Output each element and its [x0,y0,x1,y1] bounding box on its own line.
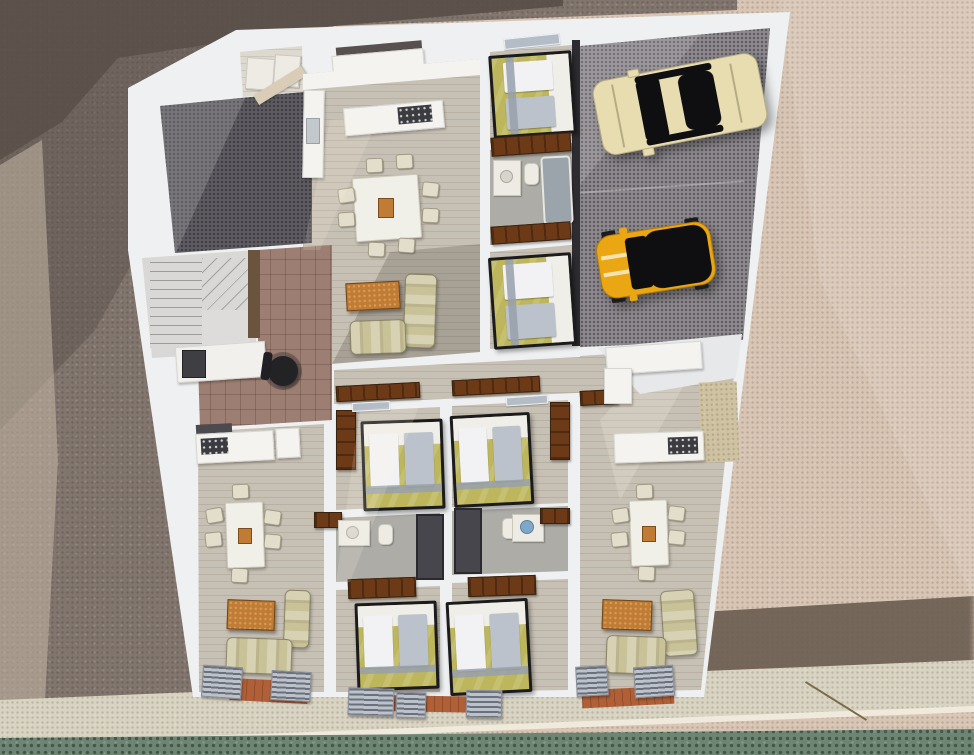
dining-chair [636,484,654,500]
bed-center-2R [446,598,533,696]
pillow [404,432,435,487]
bath-cabinet-right [540,508,570,524]
table-centerpiece-left [238,528,252,544]
cooktop-top-unit [397,105,432,125]
coffee-table-top [345,281,400,312]
sofa-long-top [403,273,438,348]
dining-chair [337,211,355,227]
bed-center-1R [450,412,535,508]
pillow [455,614,487,672]
dining-chair [396,154,414,170]
dining-chair [422,208,440,224]
louver-shutter [575,665,609,697]
dining-chair [397,237,415,253]
bed-tr-1 [488,50,577,139]
floor-plan-render [0,0,974,755]
shower-R [454,508,482,574]
wardrobe-bedroom2R [468,575,537,597]
toilet-tr [524,163,539,185]
yellow-mini [594,219,719,300]
pillow [490,612,522,670]
dining-chair [231,568,249,584]
pillow [459,428,490,484]
toilet-L [378,524,393,545]
cooktop-right-unit [668,436,699,454]
office-chair [268,356,298,386]
dining-chair [232,484,250,500]
dining-chair [667,529,685,546]
fridge-left-unit [275,427,301,458]
louver-shutter [270,670,312,702]
louver-shutter [633,665,675,699]
dining-chair [667,505,686,522]
stair-winder-treads [202,258,250,310]
bed-center-2L [354,601,439,692]
dining-chair [366,158,384,174]
shower-L [416,514,444,580]
mini-mirror-left [619,227,628,234]
pillow [363,615,394,668]
louver-shutter [348,687,395,717]
cooktop-left-unit [201,437,229,454]
louver-shutter [396,691,427,718]
bathtub-tr [540,155,574,224]
kitchen-counter-side-right-unit [604,368,632,404]
table-centerpiece-top [378,198,394,218]
louver-shutter [466,690,502,719]
dining-chair [263,509,282,526]
pillow [398,614,429,667]
stair-flight-straight [150,262,202,348]
dining-chair [205,507,224,525]
dining-chair [610,531,628,548]
dining-chair [421,181,439,198]
dining-chair [611,507,630,524]
coffee-table-right [601,599,652,631]
louver-shutter [201,665,243,700]
stair-edge-wood [248,250,260,338]
dining-chair [638,566,656,582]
bed-tr-2 [488,252,577,350]
wardrobe-bedroom1R [550,402,570,460]
table-centerpiece-right [642,526,656,542]
wardrobe-bedroom2L [348,577,417,599]
vanity-bowl-tr [500,170,513,183]
mini-black-roof [642,223,714,290]
kitchen-sink [306,118,320,144]
kitchen-tile-patch-right-unit [699,381,740,462]
loveseat-top [349,319,406,355]
desk-drawers [182,350,206,378]
dining-chair [263,533,281,549]
pillow [493,426,524,482]
coffee-table-left [226,599,275,631]
vanity-bowl-blue-R [520,520,534,534]
dining-chair [204,531,222,548]
dining-chair [368,242,386,258]
bed-runner [360,664,436,674]
